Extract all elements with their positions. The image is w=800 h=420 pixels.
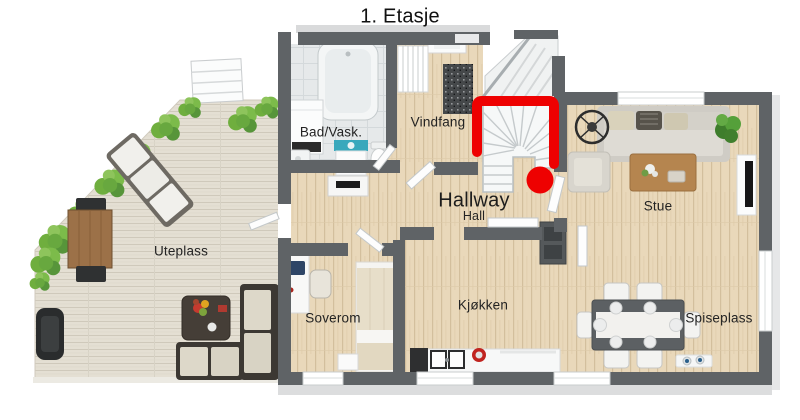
page-title: 1. Etasje [360, 6, 440, 29]
room-label-uteplass: Uteplass [154, 244, 208, 259]
hall-dresser [328, 176, 368, 196]
outdoor-coffee-table [182, 296, 230, 340]
nightstand [338, 354, 358, 370]
room-label-vindfang: Vindfang [411, 115, 466, 130]
floor-plan-drawing [0, 0, 800, 420]
room-label-spiseplass: Spiseplass [685, 311, 752, 326]
coffee-table [630, 154, 696, 191]
bathtub [318, 42, 378, 120]
doormat [443, 64, 473, 114]
tv-console [737, 155, 756, 215]
highlight-dot [527, 167, 554, 194]
room-label-bad-vask: Bad/Vask. [300, 125, 362, 140]
room-label-hall: Hall [463, 209, 485, 223]
desk-chair [310, 270, 331, 298]
outdoor-armchair [36, 308, 64, 360]
room-label-soverom: Soverom [305, 311, 360, 326]
kitchen-counter [410, 348, 560, 372]
bed [356, 262, 398, 372]
upper-stairs-cutaway [483, 30, 558, 98]
terrace-steps [191, 59, 243, 104]
radiator-rack [398, 46, 428, 92]
armchair [568, 152, 610, 192]
floor-plan: 1. Etasje Uteplass Bad/Vask. Vindfang Ha… [0, 0, 800, 420]
room-label-kjokken: Kjøkken [458, 298, 508, 313]
pet-bowls [676, 355, 712, 367]
room-label-stue: Stue [644, 199, 673, 214]
